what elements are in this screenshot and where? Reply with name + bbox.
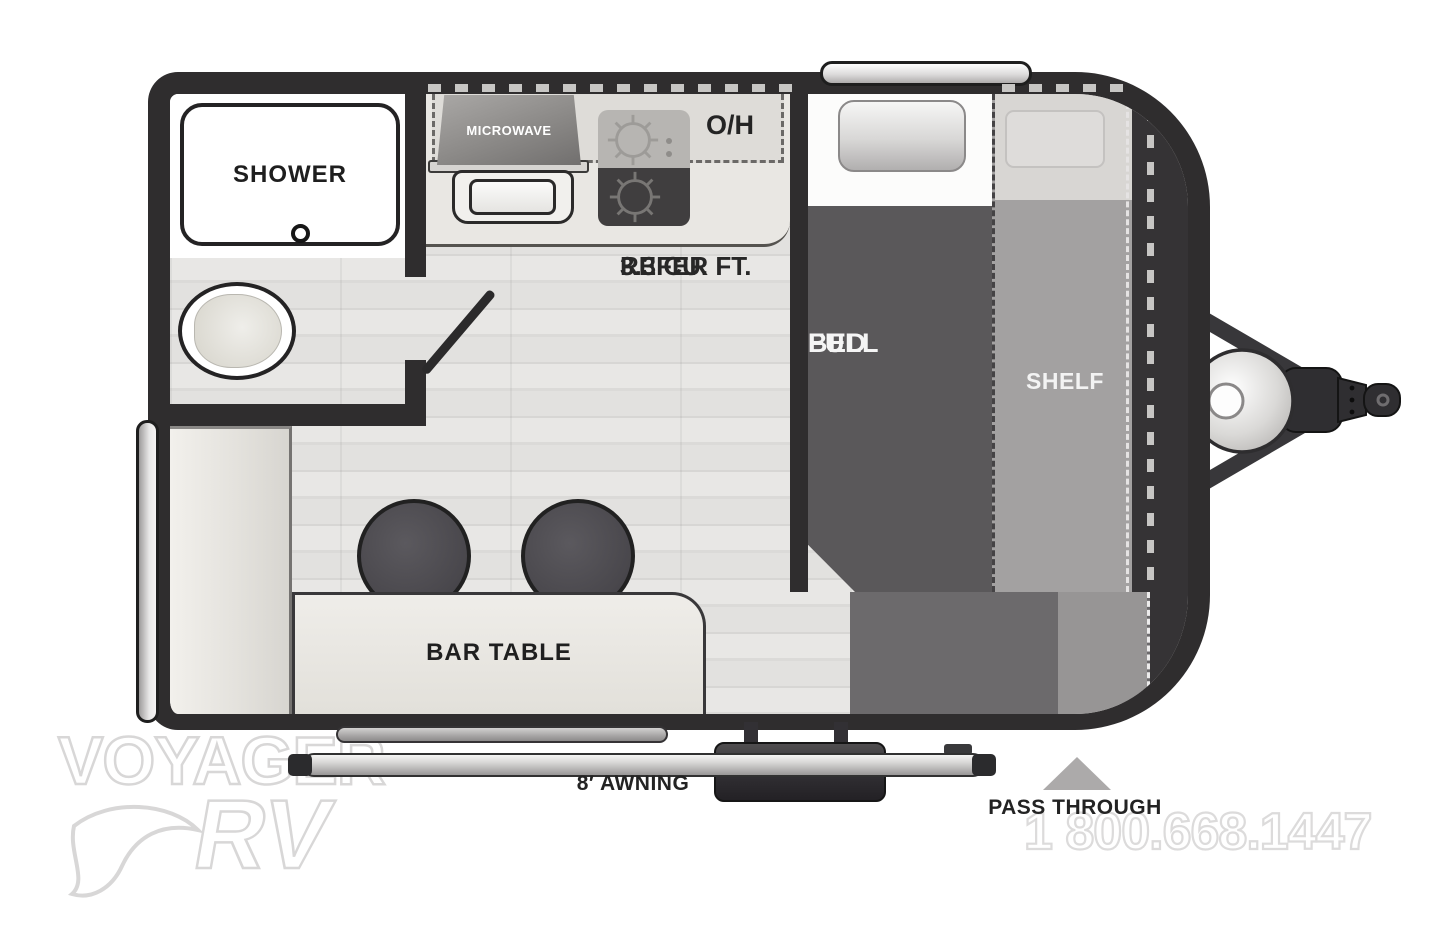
shower-room: SHOWER (170, 94, 405, 258)
bed-area: FULL BED SHELF (808, 94, 1132, 592)
microwave-label: MICROWAVE (466, 123, 551, 138)
microwave: MICROWAVE (437, 95, 581, 165)
burner-icon (606, 168, 664, 226)
bar-table: BAR TABLE (292, 592, 706, 714)
front-overhead-dashes (1147, 108, 1154, 586)
rv-floorplan-stage: VOYAGER RV 1 800.668.1447 FULL BED SHEL (0, 0, 1440, 948)
shower-drain-icon (291, 224, 310, 243)
cooktop-knob-dot (666, 151, 672, 157)
toilet-bowl (194, 294, 282, 368)
voyager-logo-swoosh-icon (66, 800, 206, 904)
shelf: SHELF (992, 94, 1132, 592)
grab-rail (336, 726, 668, 743)
awning-end-cap (288, 754, 312, 776)
trailer-body: FULL BED SHELF (148, 72, 1210, 730)
bathroom-right-wall (405, 94, 426, 277)
pass-through-arrow-icon (1043, 757, 1111, 790)
bathroom-bottom-wall (170, 404, 426, 426)
trailer-tongue (1180, 280, 1430, 520)
full-bed: FULL BED (808, 94, 992, 592)
toilet-icon (178, 282, 296, 380)
shower-label: SHOWER (184, 161, 396, 189)
pass-through-label: PASS THROUGH (960, 796, 1190, 820)
awning-end-cap (972, 754, 996, 776)
voyager-watermark-rv: RV (186, 778, 340, 891)
bathroom-door (421, 289, 497, 376)
front-window (820, 61, 1032, 86)
bar-table-label: BAR TABLE (295, 639, 703, 667)
pass-through-storage (850, 592, 1150, 714)
sink-basin (469, 179, 556, 215)
overhead-cabinet-label: O/H (682, 110, 778, 141)
shelf-dashed-edge (1126, 94, 1129, 592)
wardrobe-cabinet (170, 426, 292, 714)
shower-pan: SHOWER (180, 103, 400, 246)
bedroom-overhead-dashes (1002, 84, 1130, 92)
shelf-label: SHELF (995, 368, 1135, 395)
sink-icon (452, 170, 574, 224)
shelf-cushion (1005, 110, 1105, 168)
bed-pillow (838, 100, 966, 172)
bed-divider-wall (790, 94, 808, 592)
awning-label: 8′ AWNING (540, 772, 726, 796)
kitchen-counter: O/H MICROWAVE (426, 94, 790, 247)
hitch-coupler-icon (1280, 368, 1400, 432)
cooktop-knob-dot (666, 138, 672, 144)
burner-icon (604, 111, 662, 169)
rear-window (136, 420, 159, 723)
kitchen-overhead-dashes (428, 84, 794, 92)
